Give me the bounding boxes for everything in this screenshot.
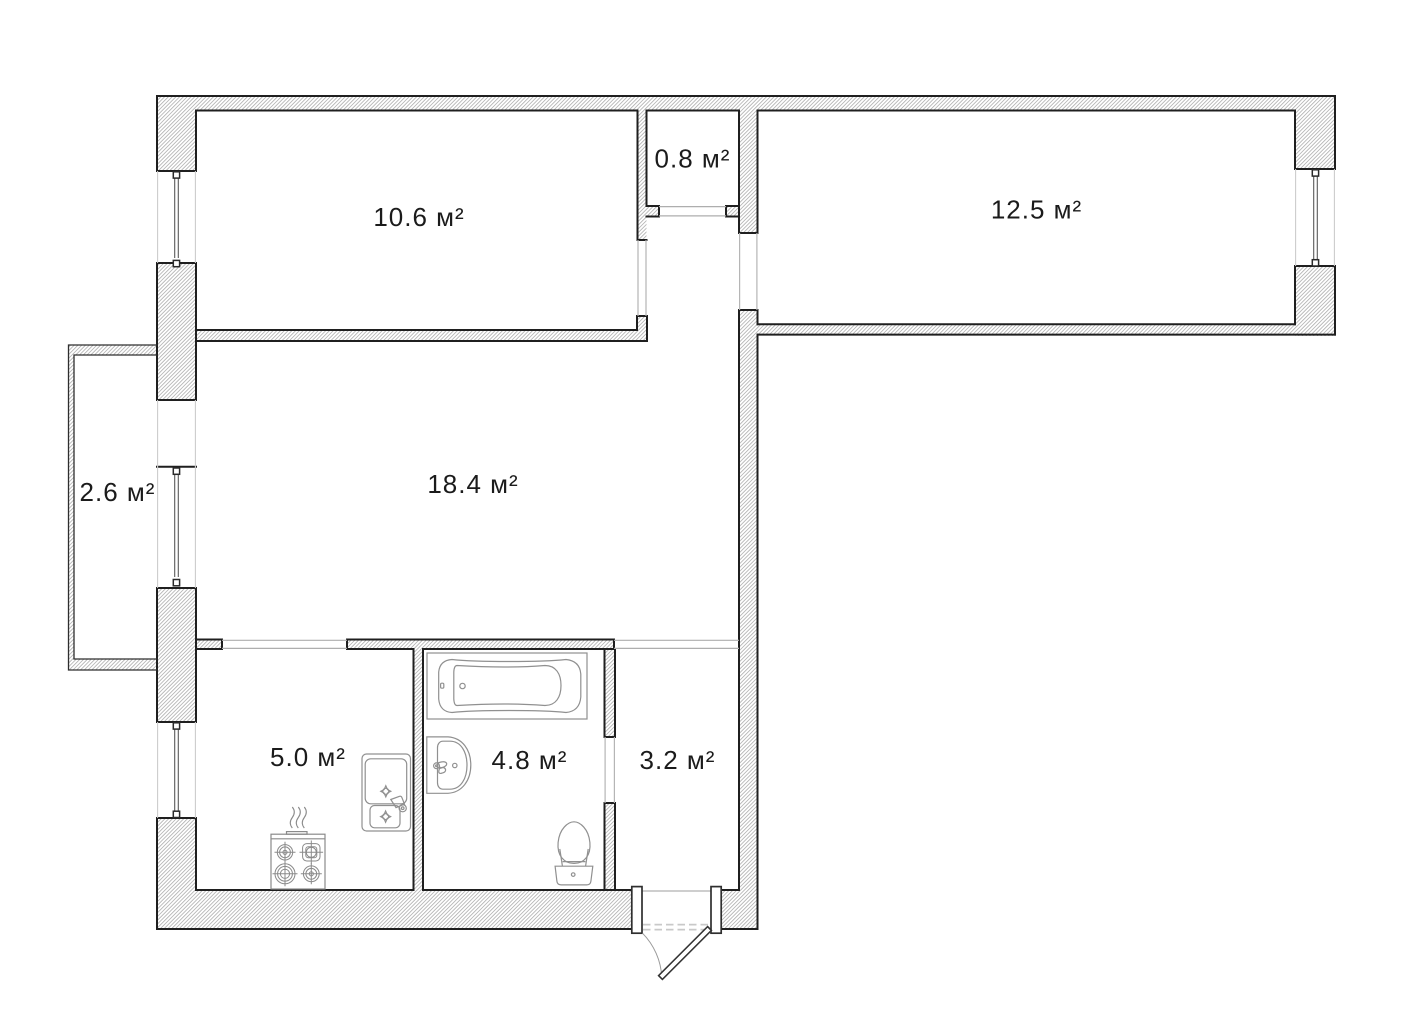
svg-text:0.8 м²: 0.8 м² (655, 144, 731, 174)
svg-text:2.6 м²: 2.6 м² (80, 477, 156, 507)
svg-text:3.2 м²: 3.2 м² (640, 745, 716, 775)
svg-text:18.4 м²: 18.4 м² (427, 469, 518, 499)
svg-text:5.0 м²: 5.0 м² (270, 742, 346, 772)
svg-text:12.5 м²: 12.5 м² (991, 195, 1082, 225)
svg-text:10.6 м²: 10.6 м² (373, 202, 464, 232)
svg-text:4.8 м²: 4.8 м² (492, 745, 568, 775)
